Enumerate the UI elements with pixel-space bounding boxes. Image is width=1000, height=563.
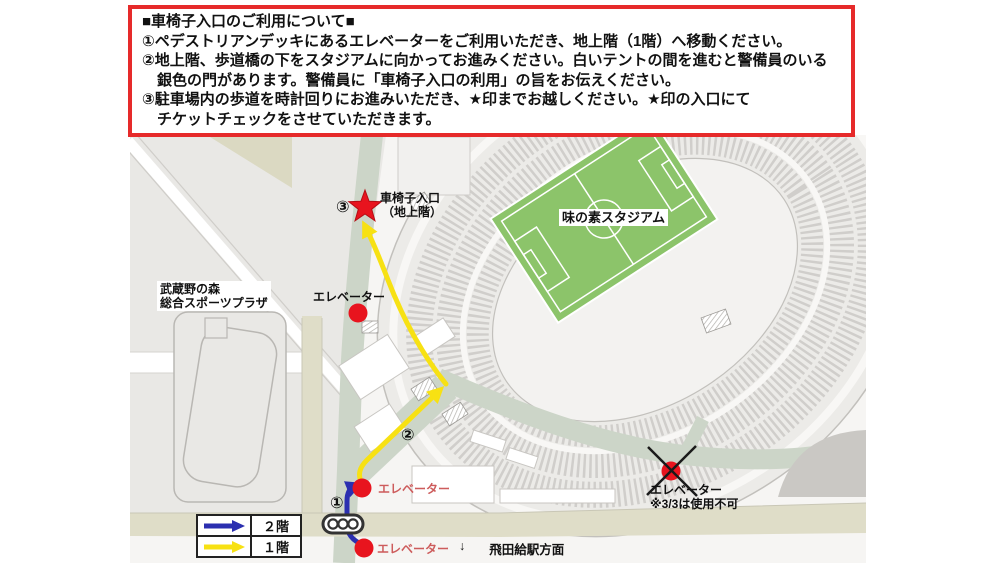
sports-plaza-label: 武蔵野の森 総合スポーツプラザ	[157, 281, 271, 311]
legend-floor2-label: ２階	[252, 516, 300, 535]
notice-line-3: 銀色の門があります。警備員に「車椅子入口の利用」の旨をお伝えください。	[142, 71, 841, 91]
notice-line-1: ①ペデストリアンデッキにあるエレベーターをご利用いただき、地上階（1階）へ移動く…	[142, 32, 841, 52]
route-legend: ２階 １階	[196, 514, 302, 558]
elevator-dot-south	[355, 539, 374, 558]
elevator-deck-label: エレベーター	[313, 290, 385, 304]
notice-line-2: ②地上階、歩道橋の下をスタジアムに向かってお進みください。白いテントの間を進むと…	[142, 51, 841, 71]
floor2-arrow-icon	[198, 516, 252, 535]
notice-line-5: チケットチェックをさせていただきます。	[142, 110, 841, 130]
sports-plaza-building	[174, 312, 286, 502]
elevator-dot-mid	[353, 479, 372, 498]
stadium-label: 味の素スタジアム	[559, 209, 668, 226]
legend-row-floor2: ２階	[198, 516, 300, 535]
station-direction-label: ↓ 飛田給駅方面	[459, 539, 564, 558]
wheelchair-entrance-label: 車椅子入口 （地上階）	[380, 191, 442, 219]
legend-floor1-label: １階	[252, 537, 300, 556]
down-arrow-icon: ↓	[459, 539, 465, 558]
legend-row-floor1: １階	[198, 535, 300, 556]
step-marker-3: ③	[336, 200, 350, 216]
floor1-arrow-icon	[198, 537, 252, 556]
screenshot-root: ■車椅子入口のご利用について■ ①ペデストリアンデッキにあるエレベーターをご利用…	[0, 0, 1000, 563]
elevator-mid-label: エレベーター	[378, 482, 450, 496]
elevator-dot-deck	[349, 304, 368, 323]
notice-title: ■車椅子入口のご利用について■	[142, 12, 841, 32]
elevator-south-label: エレベーター	[377, 542, 449, 556]
elevator-closed-label: エレベーター ※3/3は使用不可	[650, 483, 738, 511]
notice-line-4: ③駐車場内の歩道を時計回りにお進みいただき、★印までお越しください。★印の入口に…	[142, 90, 841, 110]
step-marker-2: ②	[401, 428, 415, 444]
traffic-light-icon	[323, 515, 363, 533]
notice-box: ■車椅子入口のご利用について■ ①ペデストリアンデッキにあるエレベーターをご利用…	[128, 5, 855, 137]
step-marker-1: ①	[330, 496, 344, 512]
